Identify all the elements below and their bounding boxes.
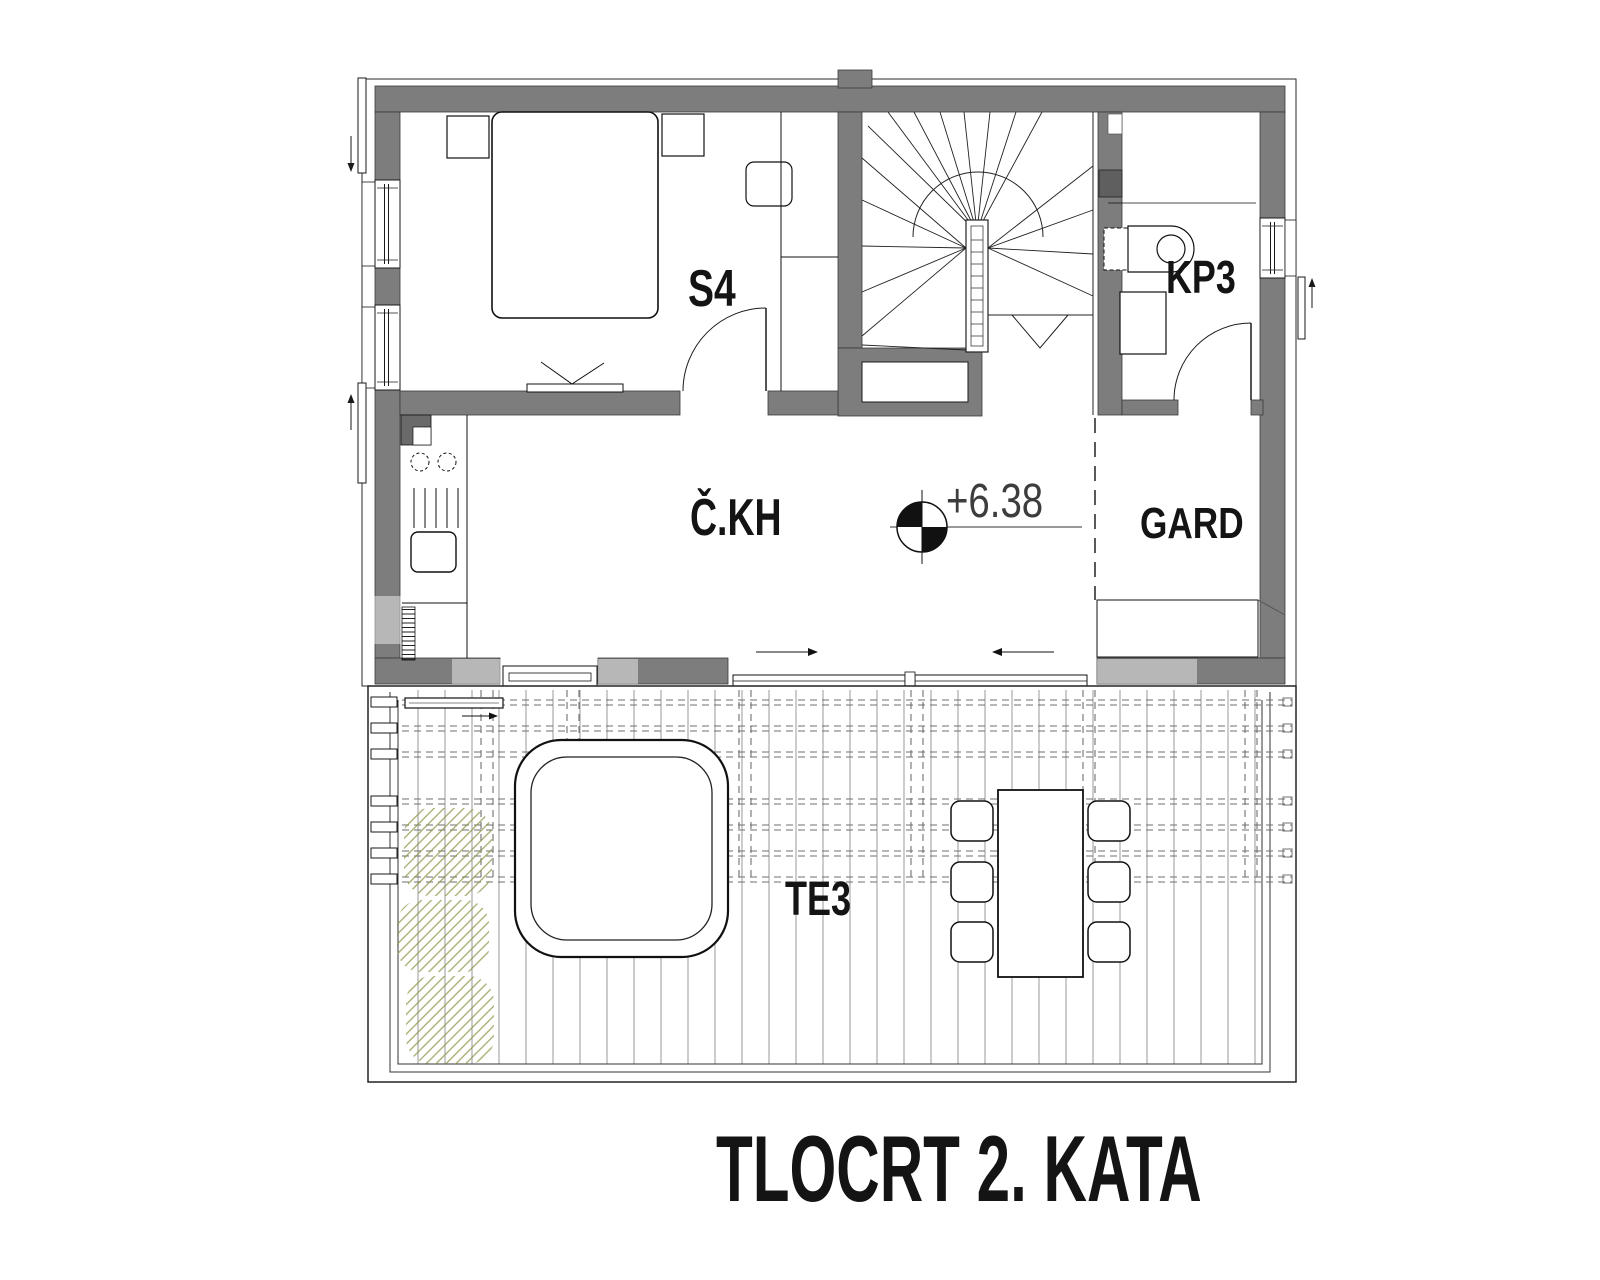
nightstand-right	[662, 114, 704, 156]
room-label-hall: Č.KH	[690, 492, 782, 544]
arrow-up-icon	[1309, 278, 1316, 287]
arrow-up-icon	[348, 394, 355, 403]
floor-plan-canvas: S4 KP3 Č.KH GARD TE3 +6.38 TLOCRT 2. KAT…	[0, 0, 1600, 1280]
arrow-left-icon	[992, 648, 1002, 656]
wall-top-notch	[838, 70, 872, 88]
chair	[951, 862, 993, 902]
arrow-right-icon	[808, 648, 818, 656]
dining-table	[998, 790, 1083, 977]
double-bed	[492, 112, 658, 318]
tv-console	[527, 384, 623, 392]
chair	[1088, 922, 1130, 962]
chair	[1088, 862, 1130, 902]
kp3-wall-niche	[1108, 114, 1122, 134]
chair	[951, 801, 993, 841]
nightstand-left	[447, 116, 489, 158]
bathroom-door	[1174, 323, 1251, 400]
radiator	[402, 607, 415, 660]
wall-bedroom-bottom	[400, 391, 680, 415]
wall-stair-left	[838, 112, 862, 348]
wall-left-upper	[375, 112, 400, 180]
gard-closet	[1097, 600, 1258, 657]
washbasin	[1120, 292, 1166, 354]
cooktop-burner	[411, 453, 429, 471]
cooktop-burner	[438, 453, 456, 471]
wall-right-lower	[1260, 278, 1285, 658]
room-label-wardrobe: GARD	[1140, 502, 1244, 546]
wall-top	[375, 86, 1285, 112]
wall-left-pier	[375, 268, 400, 305]
watermark-patches	[372, 596, 1197, 684]
bedroom-door	[683, 308, 766, 391]
toilet-cistern	[1104, 228, 1130, 270]
side-table	[746, 162, 792, 206]
wall-kp3-door-stub	[1251, 400, 1263, 415]
wall-bedroom-bottom-stub	[768, 391, 838, 415]
chair	[951, 922, 993, 962]
kitchen-sink	[411, 532, 456, 572]
floor-plan-drawing	[0, 0, 1600, 1280]
window-right	[1260, 218, 1296, 278]
wall-kp3-bottom	[1122, 400, 1178, 415]
wall-right-upper	[1260, 112, 1285, 218]
dining-set	[951, 790, 1130, 977]
understair-closet-interior	[862, 362, 968, 402]
room-label-terrace: TE3	[785, 876, 851, 924]
duct-shaft	[1099, 170, 1122, 197]
plants	[397, 808, 494, 1064]
room-label-bathroom: KP3	[1166, 254, 1236, 300]
sliding-panel	[503, 666, 597, 687]
jacuzzi	[515, 740, 728, 957]
elevation-label: +6.38	[946, 478, 1043, 526]
stair-direction-arrow	[1012, 315, 1068, 348]
sliding-doors	[503, 648, 1087, 689]
window-left-upper	[362, 180, 400, 268]
drawing-title: TLOCRT 2. KATA	[716, 1122, 1202, 1216]
room-label-bedroom: S4	[688, 263, 736, 315]
chair	[1088, 801, 1130, 841]
bedroom-furniture	[447, 112, 838, 392]
arrow-down-icon	[348, 163, 355, 172]
window-left-lower	[362, 305, 400, 390]
